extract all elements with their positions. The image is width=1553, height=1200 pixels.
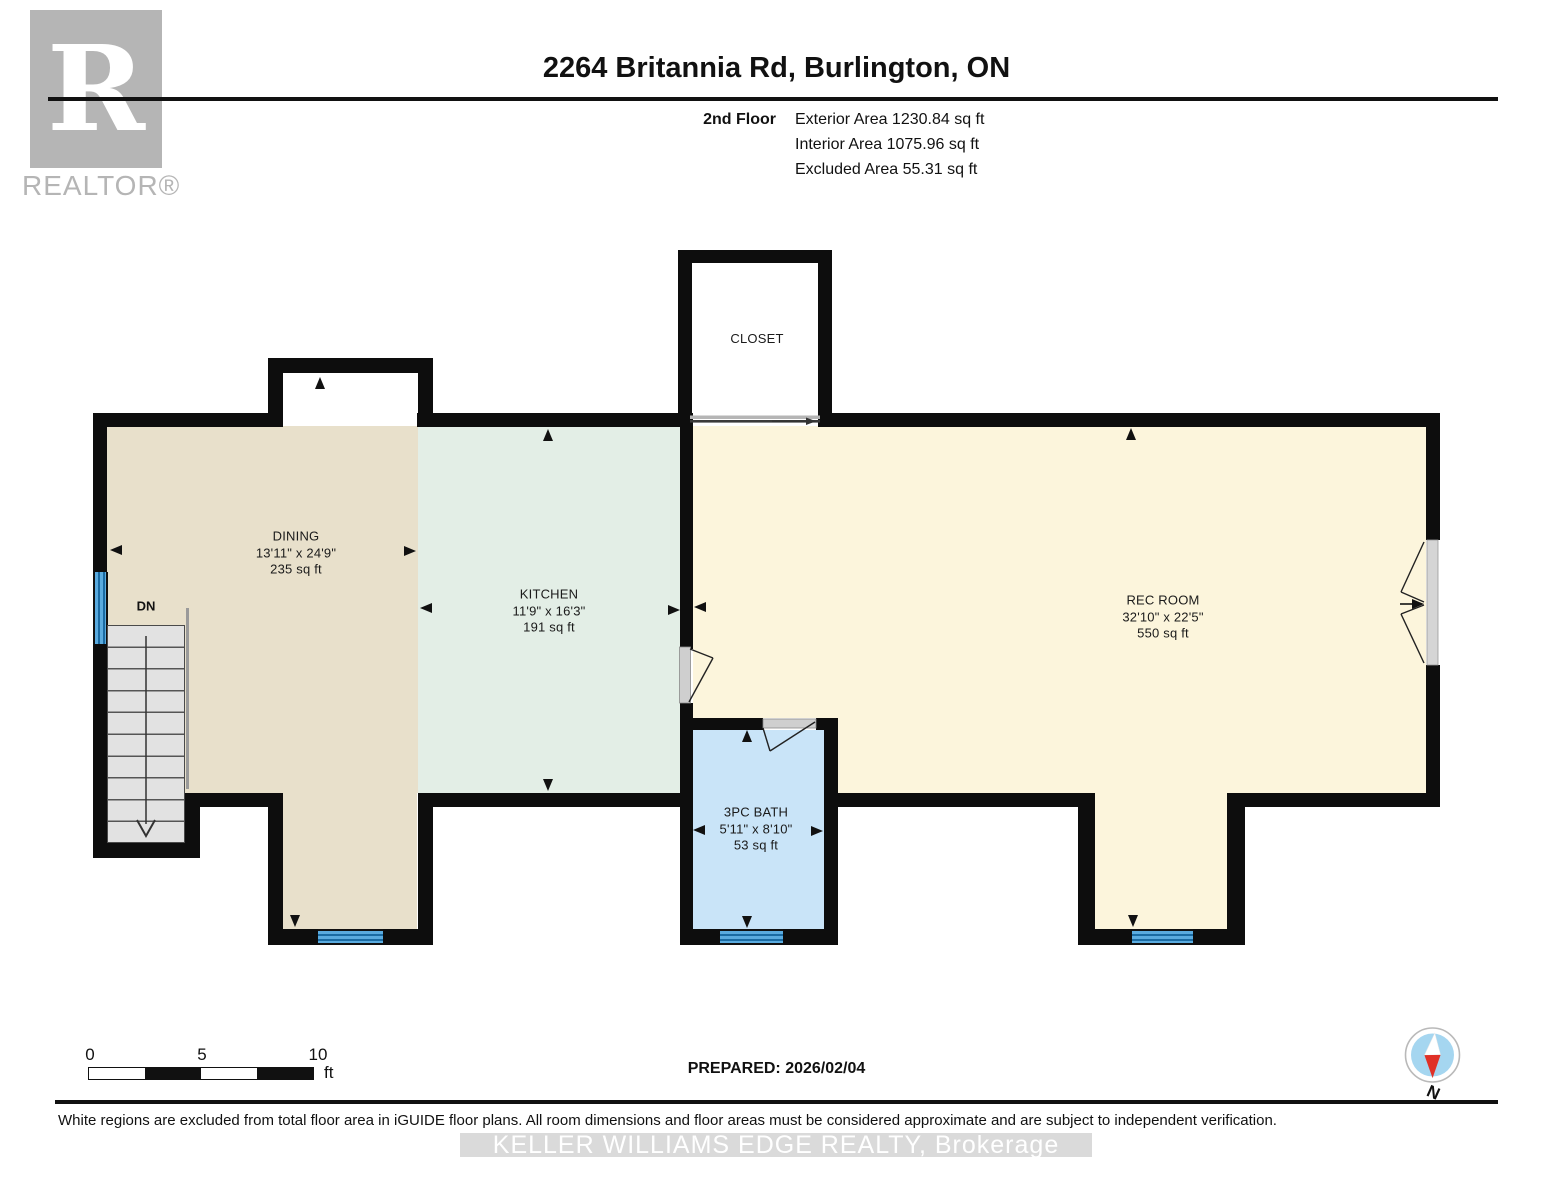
dim-arrow-rec-left — [694, 602, 706, 612]
dim-arrow-rec-up — [1126, 428, 1136, 440]
prepared-date: PREPARED: 2026/02/04 — [0, 1060, 1553, 1078]
room-area: 53 sq ft — [720, 837, 793, 854]
dim-arrow-bath-right — [811, 826, 823, 836]
label-bath: 3PC BATH 5'11" x 8'10" 53 sq ft — [720, 804, 793, 854]
room-name: 3PC BATH — [720, 804, 793, 821]
label-dining: DINING 13'11" x 24'9" 235 sq ft — [256, 528, 336, 578]
plan-vector-overlay — [0, 0, 1553, 1200]
room-name: KITCHEN — [513, 586, 586, 603]
dim-arrow-kitchen-left — [420, 603, 432, 613]
dim-arrow-kitchen-up — [543, 429, 553, 441]
stairs-down-arrow-icon — [137, 636, 155, 836]
dim-arrow-bath-down — [742, 916, 752, 928]
watermark-band: KELLER WILLIAMS EDGE REALTY, Brokerage — [460, 1133, 1092, 1157]
label-rec-room: REC ROOM 32'10" x 22'5" 550 sq ft — [1122, 592, 1203, 642]
dim-arrow-dining-right — [404, 546, 416, 556]
room-dims: 5'11" x 8'10" — [720, 821, 793, 838]
dim-arrow-bath-up — [742, 730, 752, 742]
room-name: REC ROOM — [1122, 592, 1203, 609]
floor-plan-page: R REALTOR® 2264 Britannia Rd, Burlington… — [0, 0, 1553, 1200]
label-kitchen: KITCHEN 11'9" x 16'3" 191 sq ft — [513, 586, 586, 636]
room-name: CLOSET — [730, 331, 783, 348]
bath-door-swing-icon — [763, 719, 816, 751]
header-rule — [48, 97, 1498, 101]
dim-arrow-kitchen-right — [668, 605, 680, 615]
room-area: 191 sq ft — [513, 619, 586, 636]
room-dims: 13'11" x 24'9" — [256, 545, 336, 562]
disclaimer-text: White regions are excluded from total fl… — [58, 1112, 1277, 1129]
dim-arrow-kitchen-down — [543, 779, 553, 791]
dim-arrow-dining-up — [315, 377, 325, 389]
dim-arrow-bath-left — [693, 825, 705, 835]
room-area: 235 sq ft — [256, 561, 336, 578]
dim-arrow-rec-down — [1128, 915, 1138, 927]
room-area: 550 sq ft — [1122, 625, 1203, 642]
room-dims: 32'10" x 22'5" — [1122, 609, 1203, 626]
room-name: DINING — [256, 528, 336, 545]
footer-rule — [55, 1100, 1498, 1104]
watermark-text: KELLER WILLIAMS EDGE REALTY, Brokerage — [493, 1131, 1059, 1160]
label-closet: CLOSET — [730, 331, 783, 348]
dim-arrow-dining-left — [110, 545, 122, 555]
dim-arrow-rec-right — [1412, 599, 1424, 609]
room-dims: 11'9" x 16'3" — [513, 603, 586, 620]
dim-arrow-dining-down — [290, 915, 300, 927]
closet-sliding-door-icon — [690, 416, 820, 426]
kitchen-door-swing-icon — [680, 647, 714, 703]
